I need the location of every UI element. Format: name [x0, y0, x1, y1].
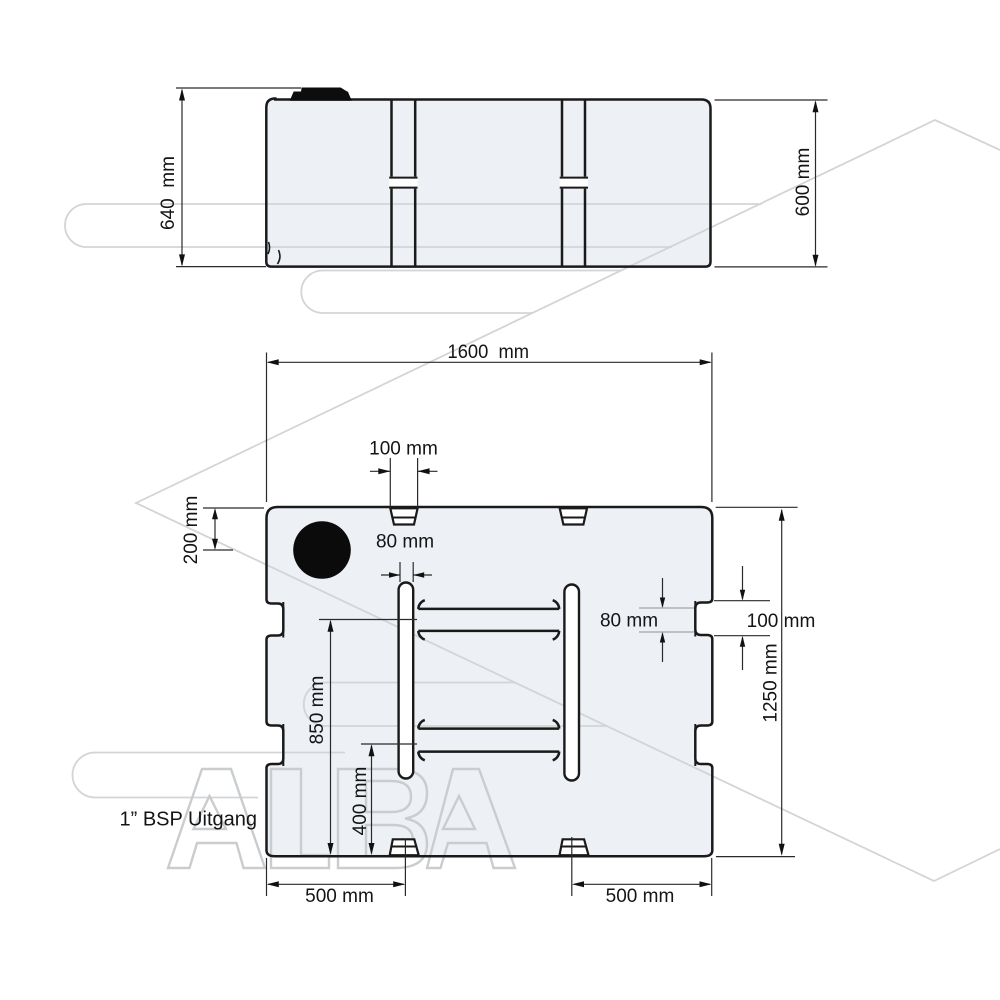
svg-text:100 mm: 100 mm — [369, 439, 438, 460]
svg-text:1” BSP Uitgang: 1” BSP Uitgang — [120, 809, 258, 831]
svg-text:1250 mm: 1250 mm — [761, 643, 782, 722]
svg-text:500 mm: 500 mm — [305, 886, 374, 907]
svg-text:400 mm: 400 mm — [350, 767, 371, 836]
svg-text:850 mm: 850 mm — [307, 676, 328, 745]
svg-text:640 mm: 640 mm — [158, 156, 179, 230]
svg-text:80 mm: 80 mm — [600, 611, 658, 632]
svg-text:600 mm: 600 mm — [793, 148, 814, 217]
svg-text:80 mm: 80 mm — [376, 532, 434, 553]
svg-text:500 mm: 500 mm — [606, 886, 675, 907]
svg-text:200 mm: 200 mm — [181, 496, 202, 565]
svg-text:1600 mm: 1600 mm — [448, 342, 530, 363]
svg-text:100 mm: 100 mm — [747, 611, 816, 632]
